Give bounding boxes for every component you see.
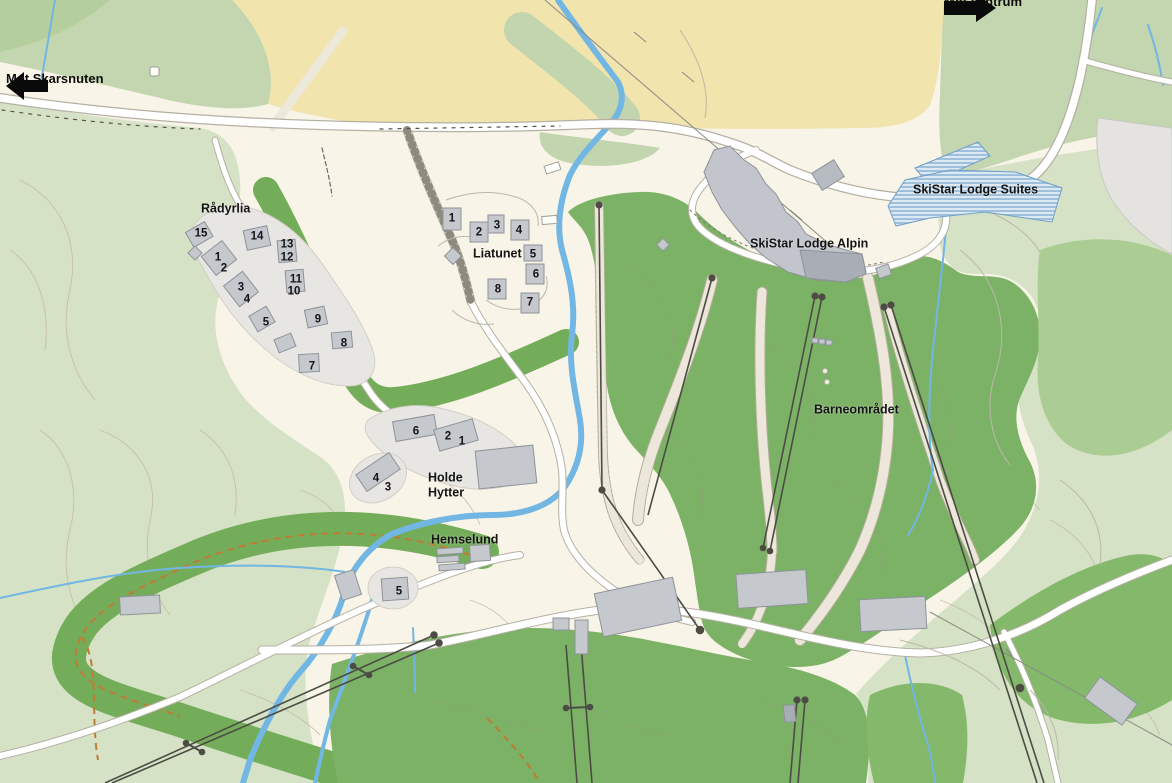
building-marker-radyrlia[interactable]: 10 — [288, 286, 301, 298]
building-marker-liatunet[interactable]: 8 — [495, 284, 501, 296]
building-marker-liatunet[interactable]: 5 — [530, 249, 536, 261]
building-marker-holde[interactable]: 6 — [413, 426, 419, 438]
area-label-holde-hytter: Holde Hytter — [428, 470, 464, 500]
area-label-liatunet: Liatunet — [473, 247, 522, 262]
building-marker-hemselund[interactable]: 5 — [396, 586, 402, 598]
direction-sign-sentrum[interactable]: Mot sentrum — [944, 0, 1022, 9]
building-marker-holde[interactable]: 3 — [385, 482, 391, 494]
building-marker-radyrlia[interactable]: 11 — [290, 274, 302, 286]
building-marker-radyrlia[interactable]: 15 — [195, 228, 208, 240]
building-marker-radyrlia[interactable]: 2 — [221, 263, 227, 275]
resort-map[interactable]: Mot Skarsnuten Mot sentrum RådyrliaLiatu… — [0, 0, 1172, 783]
building-marker-radyrlia[interactable]: 9 — [315, 314, 321, 326]
building-marker-radyrlia[interactable]: 3 — [238, 282, 244, 294]
area-label-radyrlia: Rådyrlia — [201, 202, 250, 217]
building-marker-radyrlia[interactable]: 13 — [281, 239, 294, 251]
building-marker-holde[interactable]: 1 — [459, 436, 465, 448]
building-marker-radyrlia[interactable]: 8 — [341, 338, 347, 350]
area-label-skistar-lodge-suites: SkiStar Lodge Suites — [913, 183, 1038, 198]
building-marker-liatunet[interactable]: 3 — [494, 220, 500, 232]
building-marker-liatunet[interactable]: 4 — [516, 225, 522, 237]
building-marker-holde[interactable]: 4 — [373, 473, 379, 485]
label-overlay: Mot Skarsnuten Mot sentrum RådyrliaLiatu… — [0, 0, 1172, 783]
building-marker-radyrlia[interactable]: 14 — [251, 231, 264, 243]
building-marker-radyrlia[interactable]: 5 — [263, 317, 269, 329]
arrow-left-icon — [6, 71, 48, 101]
area-label-barneomradet: Barneområdet — [814, 403, 899, 418]
building-marker-holde[interactable]: 2 — [445, 431, 451, 443]
building-marker-liatunet[interactable]: 2 — [476, 227, 482, 239]
building-marker-radyrlia[interactable]: 4 — [244, 294, 250, 306]
arrow-right-icon — [944, 0, 996, 22]
area-label-skistar-lodge-alpin: SkiStar Lodge Alpin — [750, 237, 868, 252]
building-marker-liatunet[interactable]: 6 — [533, 269, 539, 281]
building-marker-liatunet[interactable]: 7 — [527, 297, 533, 309]
building-marker-radyrlia[interactable]: 12 — [281, 252, 294, 264]
building-marker-radyrlia[interactable]: 7 — [309, 361, 315, 373]
direction-sign-skarsnuten[interactable]: Mot Skarsnuten — [6, 71, 104, 86]
building-marker-liatunet[interactable]: 1 — [449, 213, 455, 225]
area-label-hemselund: Hemselund — [431, 533, 498, 548]
